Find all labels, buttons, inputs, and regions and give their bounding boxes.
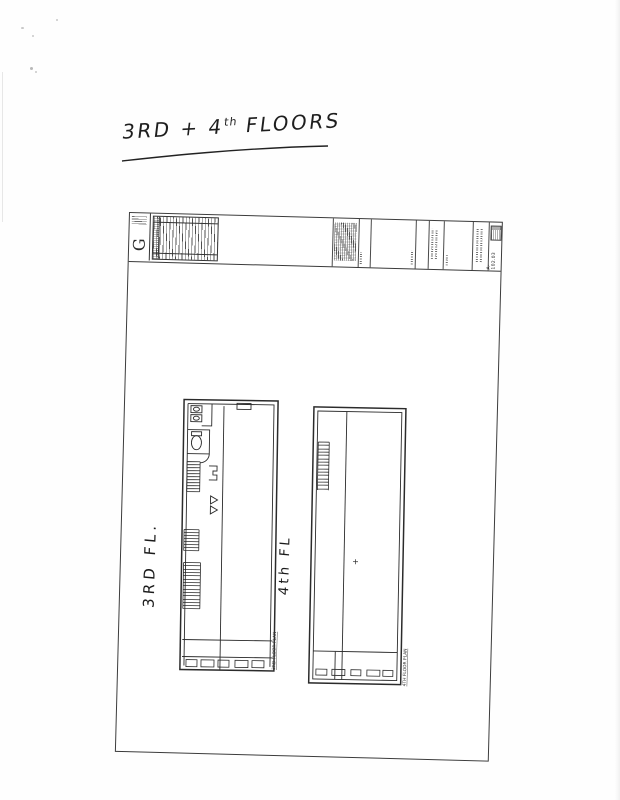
corridor-divider (220, 406, 224, 640)
handwritten-title-tail: FLOORS (236, 108, 343, 138)
scan-speck (21, 27, 24, 29)
scan-speck (30, 67, 33, 70)
left-floor-plan (180, 400, 278, 671)
scan-edge-shadow (615, 0, 620, 800)
paper-edge-line (2, 72, 3, 222)
scan-speck (32, 35, 34, 37)
title-underline (118, 142, 334, 166)
drawing-sheet: G A-102.03 (115, 212, 503, 762)
handwritten-title: 3RD + 4th FLOORS (121, 108, 343, 144)
window-row (316, 669, 393, 676)
window-row (186, 660, 264, 668)
handwritten-label-3rd-fl: 3RD FL. (140, 485, 161, 609)
inner-wall-line (313, 411, 402, 681)
center-mark (353, 559, 358, 564)
right-floor-plan (309, 407, 406, 685)
scan-speck (56, 19, 58, 21)
scan-speck (35, 71, 37, 73)
inner-wall-line (184, 404, 188, 666)
plan-caption-right: 4TH FLOOR PLAN (402, 648, 409, 686)
stair-treads (317, 442, 329, 490)
stair-treads (187, 462, 200, 492)
corridor-divider (342, 412, 347, 680)
handwritten-title-main: 3RD + 4 (121, 114, 226, 144)
bottom-band-line (182, 640, 272, 671)
scanned-page: 3RD + 4th FLOORS G (0, 0, 620, 800)
bottom-wall-line (182, 640, 272, 641)
handwritten-label-4th-fl: 4th FL (276, 502, 294, 596)
inner-wall-line (184, 404, 274, 667)
toilet-fixtures (187, 404, 212, 463)
wall-jog (209, 466, 217, 480)
stair-treads (183, 563, 201, 609)
door-swing-arrows (210, 496, 217, 514)
plan-caption-left: 3RD FLOOR PLAN (271, 632, 278, 670)
plans-drawing: 3RD FLOOR PLAN 4TH FLOOR PLAN (116, 213, 502, 761)
